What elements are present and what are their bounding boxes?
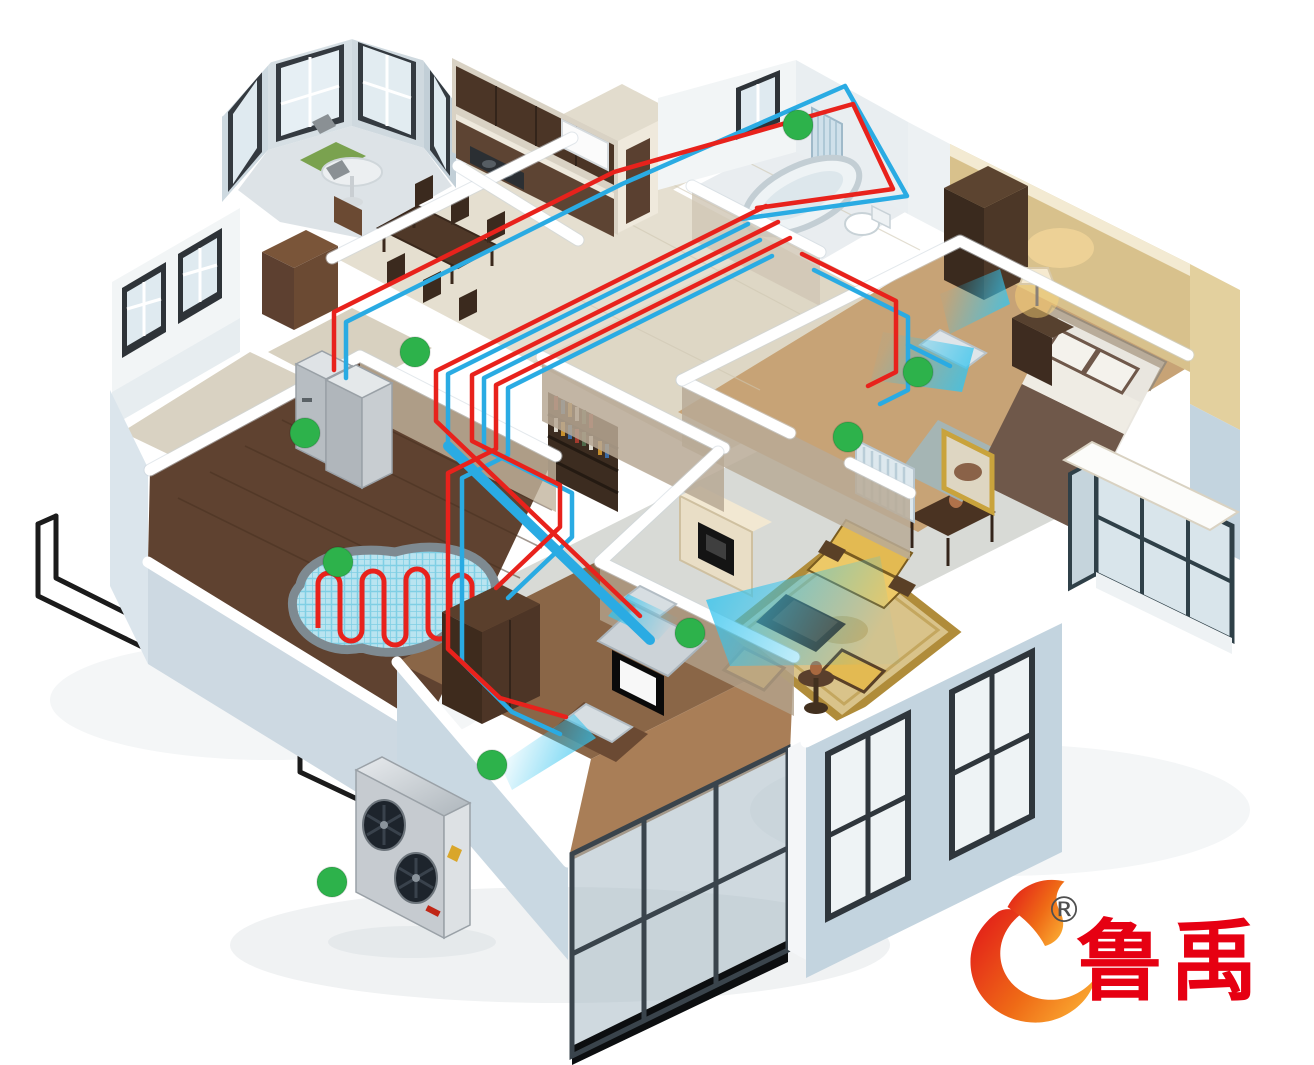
brand-logo: ® 鲁禹 <box>970 880 1264 1023</box>
location-marker <box>317 867 347 897</box>
location-marker <box>323 547 353 577</box>
fan-grille-2 <box>395 853 437 903</box>
location-marker <box>290 418 320 448</box>
door-side-wall <box>788 739 806 960</box>
house-cutaway-scene: ® 鲁禹 <box>0 0 1314 1065</box>
illustration-canvas: ® 鲁禹 <box>0 0 1314 1065</box>
location-marker <box>400 337 430 367</box>
storage-sideboard <box>262 230 338 330</box>
location-marker <box>477 750 507 780</box>
location-marker <box>783 110 813 140</box>
location-marker <box>903 357 933 387</box>
location-marker <box>675 618 705 648</box>
location-marker <box>833 422 863 452</box>
brand-name: 鲁禹 <box>1076 910 1264 1013</box>
fan-grille <box>363 800 405 850</box>
